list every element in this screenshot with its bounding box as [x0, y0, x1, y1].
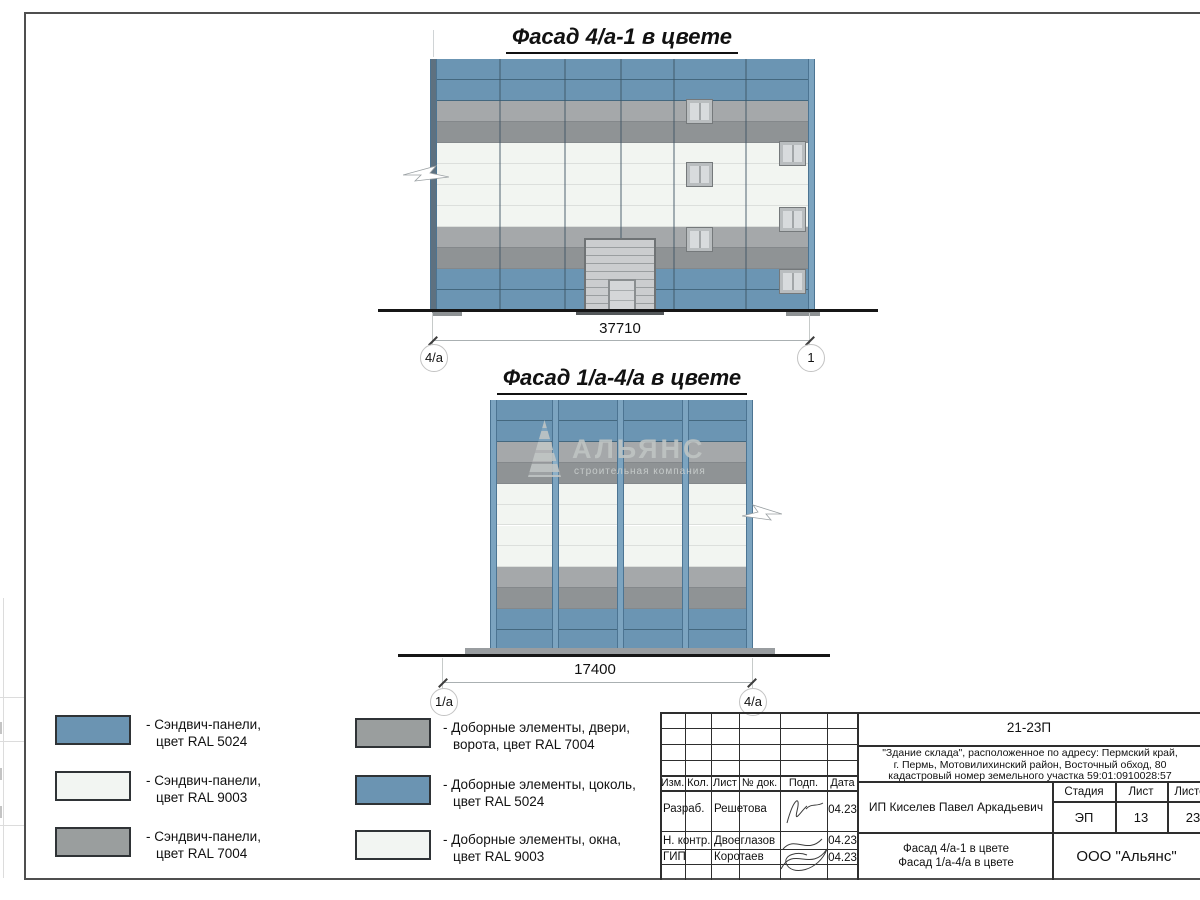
tb-date: 04.23 [827, 835, 858, 847]
dimension-line [433, 340, 811, 341]
tb-sheets-value: 23 [1167, 810, 1200, 825]
margin-line [0, 741, 24, 742]
tb-stage-label: Стадия [1053, 786, 1115, 798]
legend-swatch [355, 718, 431, 748]
tb-col-izm: Изм. [660, 777, 685, 789]
frame-bottom [24, 878, 1200, 880]
window-mullion [792, 145, 794, 162]
legend-swatch [355, 775, 431, 805]
corner-pilaster [430, 59, 437, 311]
foundation [432, 312, 462, 316]
margin-mark [0, 722, 2, 734]
legend-swatch [55, 771, 131, 801]
legend-label: - Сэндвич-панели, цвет RAL 7004 [146, 828, 261, 862]
corner-pilaster [490, 400, 497, 651]
axis-bubble-1: 1 [797, 344, 825, 372]
gate-door [608, 279, 636, 313]
break-mark-icon [403, 164, 449, 182]
tb-sheet-title: Фасад 4/а-1 в цвете Фасад 1/а-4/а в цвет… [860, 842, 1052, 870]
tb-col-kol: Кол. [685, 777, 711, 789]
gate [584, 238, 656, 311]
panel-row [430, 206, 815, 227]
tb-role: Н. контр. [663, 835, 713, 847]
legend-label-line: - Доборные элементы, окна, [443, 831, 621, 848]
tb-doc-number: 21-23П [858, 720, 1200, 735]
panel-row [430, 101, 815, 122]
legend-label-line: цвет RAL 9003 [146, 789, 261, 806]
panel-joint [564, 59, 566, 311]
window [779, 141, 806, 166]
legend-label-line: цвет RAL 5024 [443, 793, 636, 810]
window-mullion [699, 166, 701, 183]
window [686, 162, 713, 187]
margin-line [3, 598, 4, 878]
axis-extension [433, 30, 434, 57]
legend-swatch [355, 830, 431, 860]
tb-name: Коротаев [714, 851, 778, 863]
legend-label-line: ворота, цвет RAL 7004 [443, 736, 630, 753]
tb-sheet-value: 13 [1115, 810, 1167, 825]
legend-label: - Сэндвич-панели, цвет RAL 9003 [146, 772, 261, 806]
window [686, 227, 713, 252]
window [686, 99, 713, 124]
dimension-value: 37710 [520, 320, 720, 337]
tb-col-list: Лист [711, 777, 739, 789]
dimension-value: 17400 [495, 661, 695, 678]
legend-label: - Доборные элементы, двери, ворота, цвет… [443, 719, 630, 753]
window-mullion [699, 103, 701, 120]
panel-row [430, 143, 815, 164]
company-logo-icon [528, 420, 561, 477]
legend-swatch [55, 715, 131, 745]
tb-sheet-title-line: Фасад 4/а-1 в цвете [860, 842, 1052, 856]
corner-pilaster [746, 400, 753, 651]
tb-date: 04.23 [827, 804, 858, 816]
drawing-title-facade-4a-1: Фасад 4/а-1 в цвете [380, 24, 864, 54]
dimension-tick [438, 678, 448, 688]
tb-role: ГИП [663, 851, 709, 863]
panel-row [430, 185, 815, 206]
panel-row [430, 59, 815, 80]
legend-label-line: - Сэндвич-панели, [146, 772, 261, 789]
tb-col-podp: Подп. [780, 777, 827, 789]
tb-address: "Здание склада", расположенное по адресу… [862, 748, 1198, 783]
margin-line [0, 697, 24, 698]
panel-row [430, 122, 815, 143]
legend-label-line: - Доборные элементы, цоколь, [443, 776, 636, 793]
tb-col-data: Дата [827, 777, 858, 789]
dimension-line [443, 682, 754, 683]
panel-row [430, 80, 815, 101]
margin-mark [0, 768, 2, 780]
margin-line [0, 825, 24, 826]
signature [782, 791, 826, 831]
signature [777, 833, 831, 878]
legend-label-line: цвет RAL 7004 [146, 845, 261, 862]
margin-mark [0, 806, 2, 818]
tb-address-line: кадастровый номер земельного участка 59:… [862, 771, 1198, 783]
tb-client: ИП Киселев Павел Аркадьевич [860, 800, 1052, 814]
panel-joint [745, 59, 747, 311]
tb-sheet-title-line: Фасад 1/а-4/а в цвете [860, 856, 1052, 870]
panel-joint [499, 59, 501, 311]
extension-line [442, 658, 443, 691]
window [779, 269, 806, 294]
drawing-title-facade-1a-4a: Фасад 1/а-4/а в цвете [380, 365, 864, 395]
panel-row [430, 164, 815, 185]
foundation [786, 312, 820, 316]
legend-label: - Сэндвич-панели, цвет RAL 5024 [146, 716, 261, 750]
window-mullion [699, 231, 701, 248]
extension-line [752, 658, 753, 691]
panel-joint [673, 59, 675, 311]
watermark: АЛЬЯНС строительная компания [520, 418, 745, 480]
legend-swatch [55, 827, 131, 857]
tb-address-line: "Здание склада", расположенное по адресу… [862, 748, 1198, 760]
axis-bubble-1a: 1/а [430, 688, 458, 716]
tb-col-ndok: № док. [739, 777, 780, 789]
tb-sheet-label: Лист [1115, 786, 1167, 798]
ground-line [398, 654, 830, 657]
break-mark-icon [742, 503, 782, 521]
legend-label-line: цвет RAL 9003 [443, 848, 621, 865]
window-mullion [792, 211, 794, 228]
legend-label-line: цвет RAL 5024 [146, 733, 261, 750]
ground-line [378, 309, 878, 312]
window-mullion [792, 273, 794, 290]
tb-role: Разраб. [663, 803, 709, 815]
window [779, 207, 806, 232]
corner-pilaster [808, 59, 815, 311]
frame-top [24, 12, 1200, 14]
legend-label-line: - Доборные элементы, двери, [443, 719, 630, 736]
tb-name: Двоеглазов [714, 835, 778, 847]
frame-left [24, 12, 26, 880]
drawing-sheet: Фасад 4/а-1 в цвете Фасад 1/а-4/а в цвет… [0, 0, 1200, 900]
legend-label-line: - Сэндвич-панели, [146, 716, 261, 733]
watermark-name: АЛЬЯНС [572, 434, 742, 465]
tb-stage-value: ЭП [1053, 810, 1115, 825]
tb-sheets-label: Листов [1167, 786, 1200, 798]
axis-bubble-4a: 4/а [420, 344, 448, 372]
watermark-tagline: строительная компания [574, 466, 744, 477]
legend-label-line: - Сэндвич-панели, [146, 828, 261, 845]
facade-drawing-4a-1 [430, 59, 815, 311]
legend-label: - Доборные элементы, окна, цвет RAL 9003 [443, 831, 621, 865]
tb-name: Решетова [714, 803, 778, 815]
tb-company: ООО "Альянс" [1053, 848, 1200, 865]
tb-date: 04.23 [827, 852, 858, 864]
legend-label: - Доборные элементы, цоколь, цвет RAL 50… [443, 776, 636, 810]
